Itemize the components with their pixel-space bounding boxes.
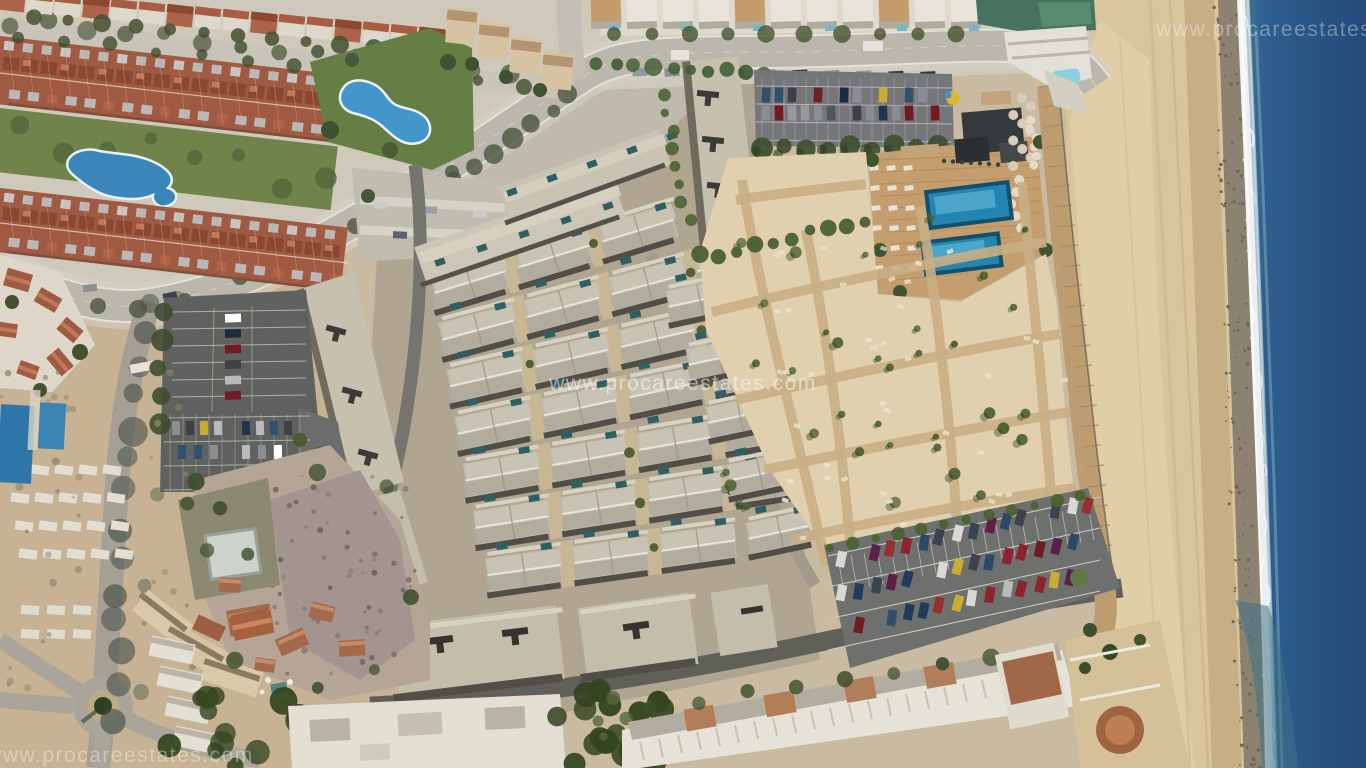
svg-text:www.procareestates.com: www.procareestates.com xyxy=(1155,18,1366,41)
svg-text:www.procareestates.com: www.procareestates.com xyxy=(0,744,254,767)
svg-text:www.procareestates.com: www.procareestates.com xyxy=(548,372,817,395)
